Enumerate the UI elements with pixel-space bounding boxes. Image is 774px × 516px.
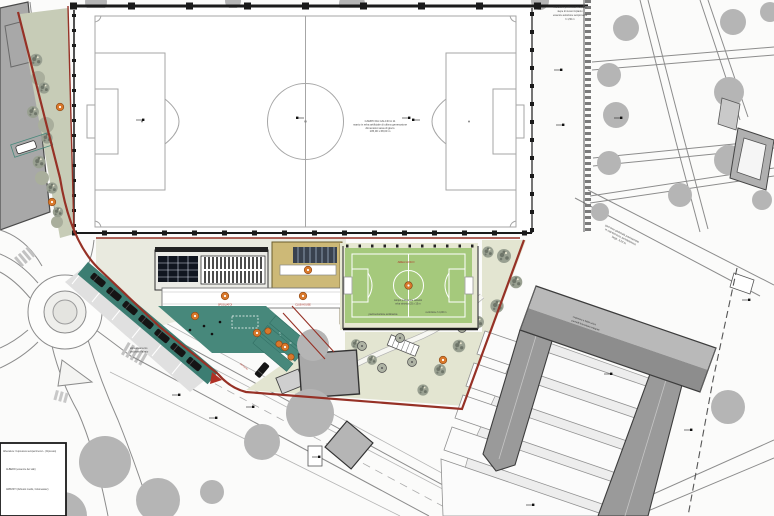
site-plan: CAMPO DA CALCIO A 11 manto in erba artif… xyxy=(0,0,774,516)
svg-text:dimensioni area di gioco: dimensioni area di gioco xyxy=(366,126,395,130)
legend-item-3: ARBUSTI (Arbusto medio, Cotoneaster) xyxy=(6,488,49,491)
mini-pitch: AREA GIOCO campo polivalente calcetto er… xyxy=(340,243,478,330)
annotation-roundabout: attraversamento pedonale rialzato xyxy=(130,347,149,354)
legend-box: Alberature: Cupressus sempervirens L. (C… xyxy=(0,443,66,516)
svg-text:manto in erba artificiale di u: manto in erba artificiale di ultima gene… xyxy=(353,122,408,126)
tree xyxy=(711,390,745,424)
svg-text:erba sintetica 25 x 15 m: erba sintetica 25 x 15 m xyxy=(395,303,420,306)
svg-text:h 1,50 m: h 1,50 m xyxy=(565,18,574,21)
canopy-label-2: CLUB HOUSE xyxy=(295,304,311,307)
svg-text:recinzione h 4,00 m: recinzione h 4,00 m xyxy=(426,311,447,314)
svg-text:recinzione perimetrale h 2,00: recinzione perimetrale h 2,00 m xyxy=(553,6,587,9)
svg-text:CAMPO DA CALCIO A 11: CAMPO DA CALCIO A 11 xyxy=(365,119,396,123)
svg-text:campo polivalente calcetto: campo polivalente calcetto xyxy=(394,299,423,302)
pergola-slats xyxy=(201,256,265,284)
site-plan-drawing: CAMPO DA CALCIO A 11 manto in erba artif… xyxy=(0,0,774,516)
roundabout-island xyxy=(53,300,77,324)
svg-text:attraversamento: attraversamento xyxy=(130,347,148,350)
football-field: CAMPO DA CALCIO A 11 manto in erba artif… xyxy=(76,8,532,233)
mini-pitch-title: AREA GIOCO xyxy=(398,260,415,264)
svg-text:essenze autoctone sempreverdi: essenze autoctone sempreverdi xyxy=(553,14,587,17)
legend-item-2: ALBERO (essenze dei viali) xyxy=(6,468,36,471)
svg-text:105,00 x 68,00 m: 105,00 x 68,00 m xyxy=(370,129,392,133)
canopy xyxy=(162,288,346,308)
svg-text:siepe di nuovo impianto: siepe di nuovo impianto xyxy=(557,10,583,13)
svg-text:pedonale rialzato: pedonale rialzato xyxy=(130,351,149,354)
svg-text:pavimentazione antitrauma: pavimentazione antitrauma xyxy=(369,313,398,316)
legend-item-1: Alberature: Cupressus sempervirens L. (C… xyxy=(3,450,56,453)
